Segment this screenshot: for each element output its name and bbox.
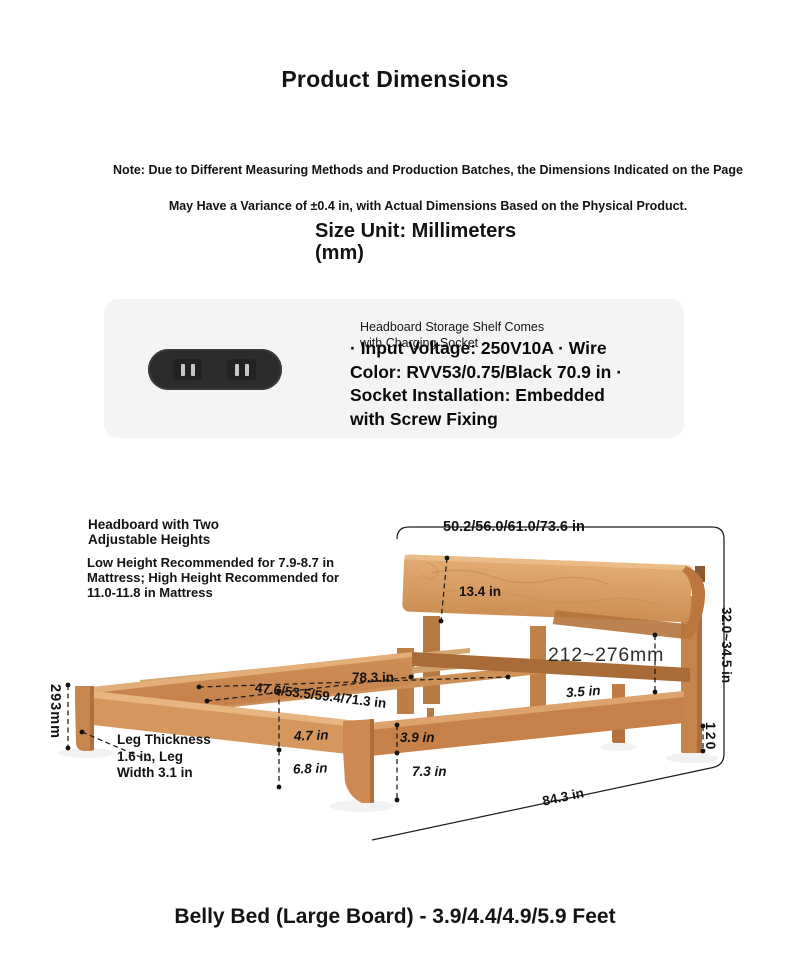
dimension-side-rail: 3.5 in <box>566 683 601 700</box>
dimension-length-top: 78.3 in <box>352 670 394 685</box>
dimension-clearance-front: 6.8 in <box>293 760 328 776</box>
dimension-total-height: 32.0~34.5 in <box>719 607 734 683</box>
socket-spec-line-4: with Screw Fixing <box>350 408 622 432</box>
headboard-note-body: Low Height Recommended for 7.9-8.7 in Ma… <box>87 555 339 600</box>
dimension-width-top: 50.2/56.0/61.0/73.6 in <box>443 519 585 535</box>
dimension-leg-height: 120 <box>703 722 719 751</box>
right-side-rail <box>370 691 684 756</box>
page-title: Product Dimensions <box>0 66 790 93</box>
size-unit-line-1: Size Unit: Millimeters <box>315 220 516 242</box>
dimension-headboard-gap: 212~276mm <box>548 644 664 667</box>
leg-note-line-1: Leg Thickness <box>117 732 211 749</box>
dimension-frame-height: 293mm <box>47 684 63 739</box>
dimension-length-outer: 84.3 in <box>541 785 585 808</box>
dimension-frame-front: 4.7 in <box>294 727 329 743</box>
socket-spec-text: · Input Voltage: 250V10A · Wire Color: R… <box>350 337 622 431</box>
socket-outlet-icon <box>173 359 202 380</box>
leg-note-line-2: 1.6 in, Leg <box>117 749 211 766</box>
dimension-center-rail: 3.9 in <box>400 730 435 745</box>
socket-slot <box>191 364 195 376</box>
left-side-rail <box>84 652 412 722</box>
headboard-note-body-line-3: 11.0-11.8 in Mattress <box>87 585 339 600</box>
product-dimensions-page: Product Dimensions Note: Due to Differen… <box>0 0 790 969</box>
leg-thickness-note: Leg Thickness 1.6 in, Leg Width 3.1 in <box>117 732 211 782</box>
note-text-line-1: Note: Due to Different Measuring Methods… <box>66 163 790 177</box>
socket-spec-line-3: Socket Installation: Embedded <box>350 384 622 408</box>
center-leg-foot <box>613 730 625 743</box>
headboard-note-body-line-2: Mattress; High Height Recommended for <box>87 570 339 585</box>
socket-slot <box>181 364 185 376</box>
size-unit-label: Size Unit: Millimeters (mm) <box>315 220 516 264</box>
headboard <box>401 554 692 639</box>
socket-caption-line-1: Headboard Storage Shelf Comes <box>360 320 544 336</box>
headboard-note-title-line-1: Headboard with Two <box>88 518 219 533</box>
socket-spec-line-1: · Input Voltage: 250V10A · Wire <box>350 337 622 361</box>
note-text-line-2: May Have a Variance of ±0.4 in, with Act… <box>66 199 790 213</box>
headboard-right-fold <box>682 566 705 640</box>
headboard-note-title-line-2: Adjustable Heights <box>88 533 219 548</box>
socket-slot <box>245 364 249 376</box>
socket-slot <box>235 364 239 376</box>
headboard-note-title: Headboard with Two Adjustable Heights <box>88 518 219 547</box>
socket-outlet-icon <box>227 359 256 380</box>
bed-illustration <box>0 0 790 969</box>
dimension-clearance-center: 7.3 in <box>412 764 447 779</box>
headboard-note-body-line-1: Low Height Recommended for 7.9-8.7 in <box>87 555 339 570</box>
size-unit-line-2: (mm) <box>315 242 516 264</box>
power-socket-icon <box>148 349 282 390</box>
charging-socket-card: Headboard Storage Shelf Comes with Charg… <box>104 299 684 438</box>
dimension-headboard-height: 13.4 in <box>459 584 501 599</box>
socket-spec-line-2: Color: RVV53/0.75/Black 70.9 in · <box>350 361 622 385</box>
product-name-title: Belly Bed (Large Board) - 3.9/4.4/4.9/5.… <box>0 905 790 929</box>
leg-note-line-3: Width 3.1 in <box>117 765 211 782</box>
